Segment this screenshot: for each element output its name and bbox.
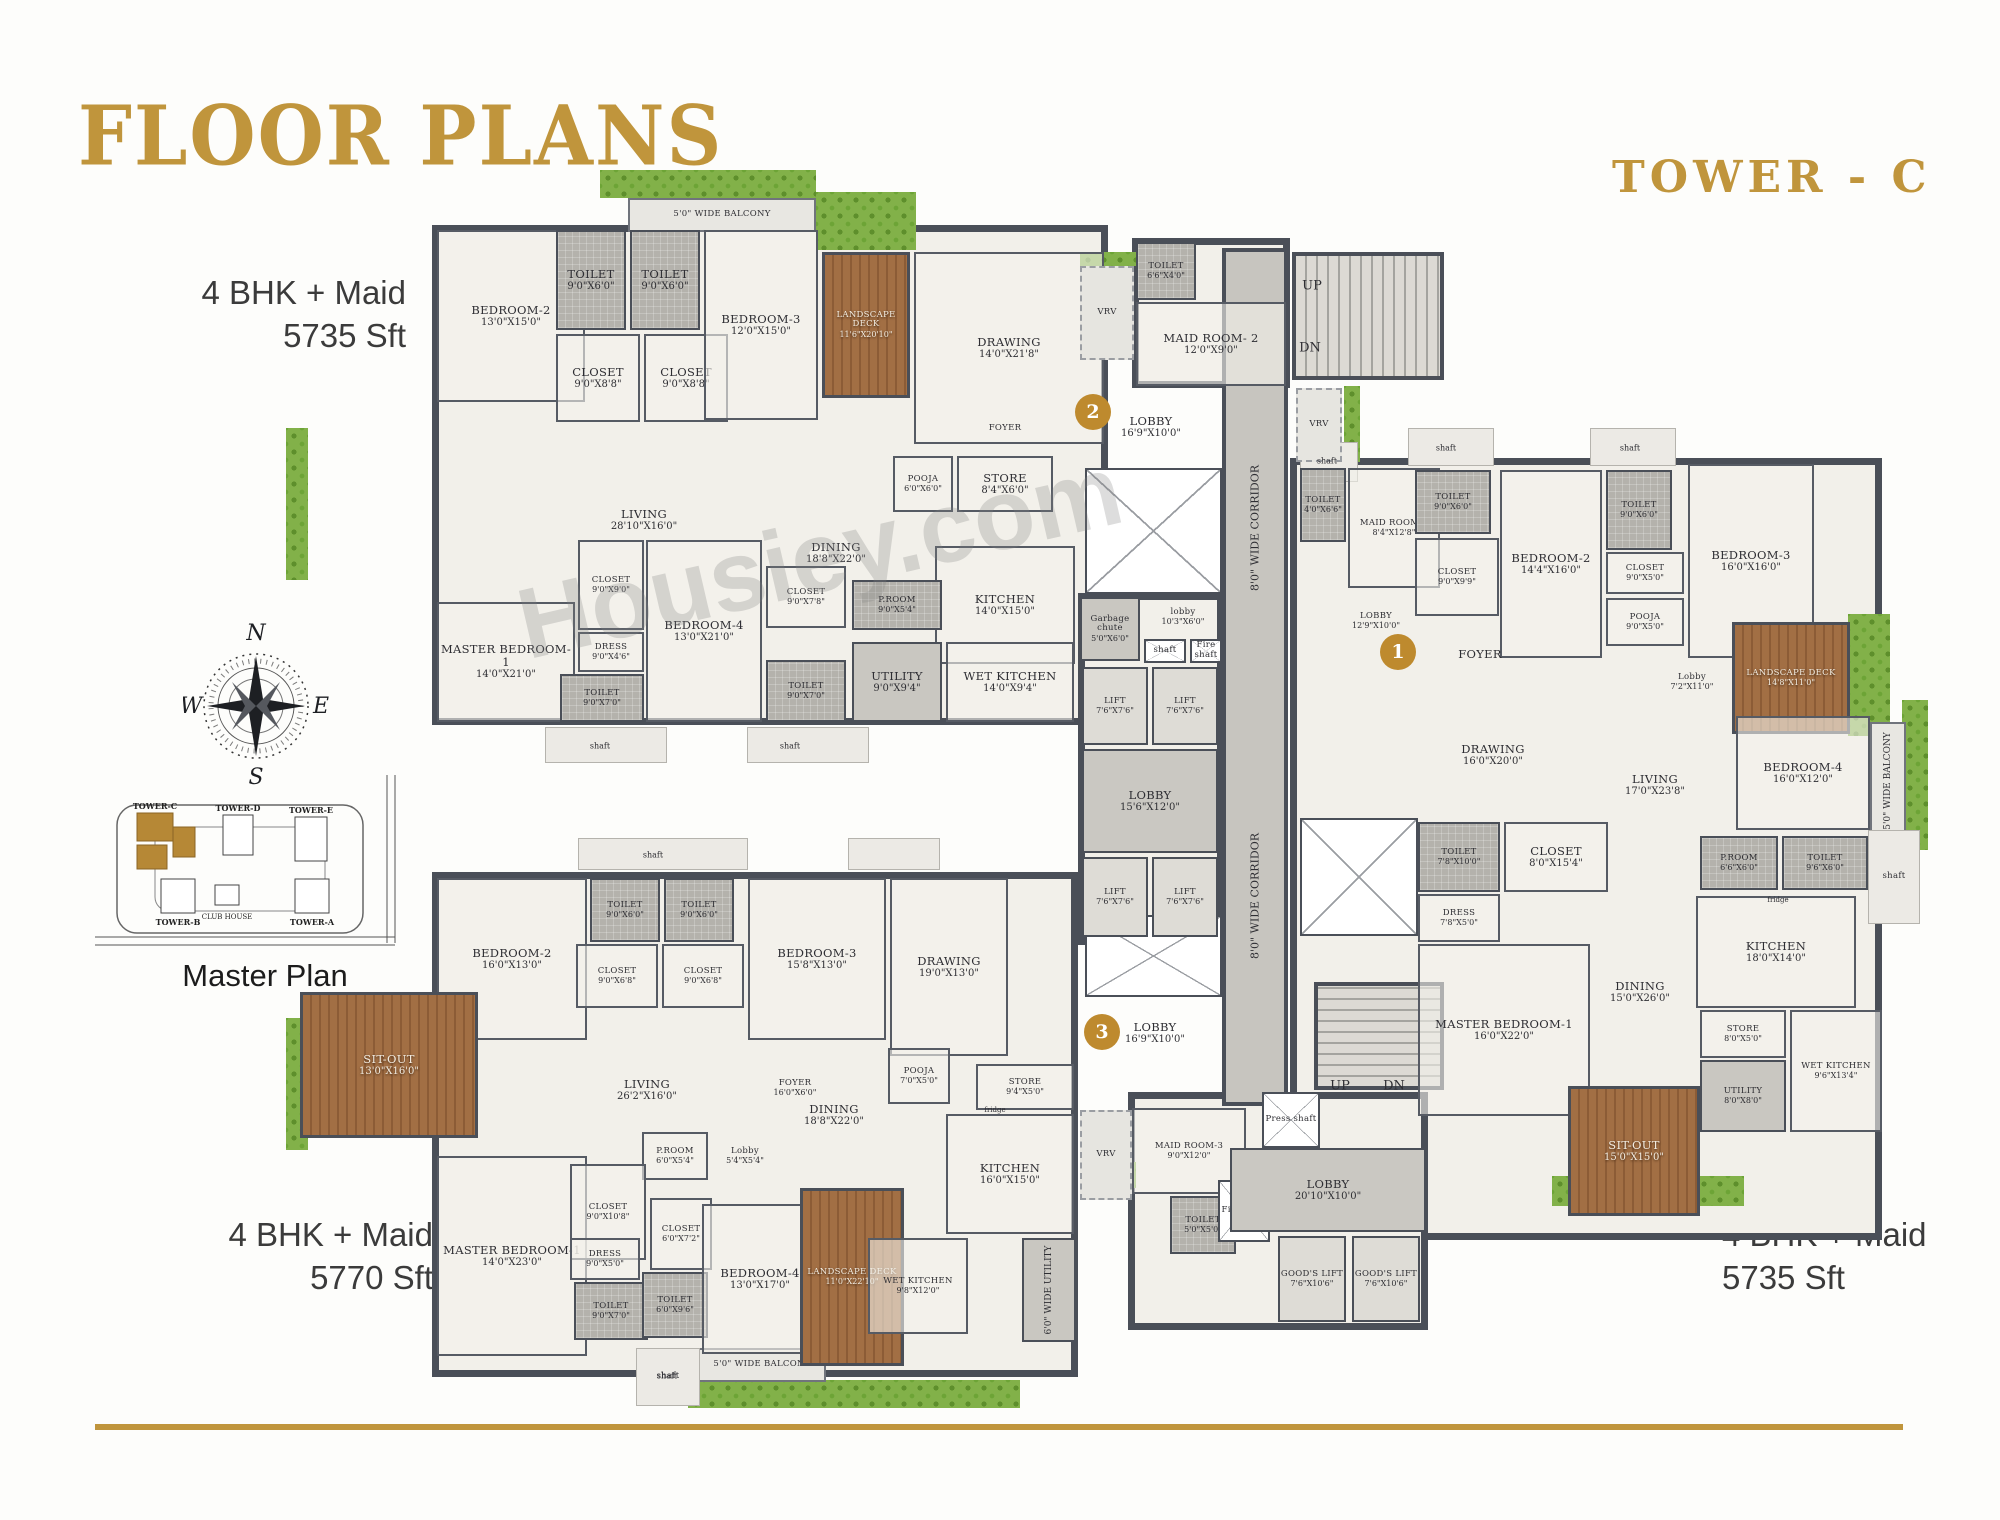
room-toilet: TOILET9'0"X6'0"	[664, 878, 734, 942]
label-shaft: shaft	[1317, 457, 1337, 466]
label-up: UP	[1330, 1079, 1350, 1094]
room-dining: DINING15'0"X26'0"	[1592, 880, 1688, 1104]
room-kitchen: KITCHEN16'0"X15'0"	[946, 1114, 1074, 1234]
room-toilet: TOILET9'0"X7'0"	[560, 674, 644, 722]
room-dress: DRESS7'8"X5'0"	[1418, 894, 1500, 942]
room-dress: DRESS9'0"X4'6"	[578, 632, 644, 672]
label-5-0-wide-balcony: 5'0" WIDE BALCONY	[1883, 732, 1893, 830]
svg-text:TOWER-A: TOWER-A	[290, 917, 335, 927]
room-lobby: Lobby5'4"X5'4"	[712, 1132, 778, 1180]
label-dn: DN	[1383, 1079, 1405, 1094]
footer-divider	[95, 1424, 1903, 1430]
svg-text:TOWER-C: TOWER-C	[133, 801, 177, 811]
unit-label-bottom-left: 4 BHK + Maid 5770 Sft	[195, 1214, 433, 1300]
zone-void	[1085, 468, 1222, 594]
room-maid-room-2: MAID ROOM- 212'0"X9'0"	[1136, 302, 1286, 386]
room-toilet: TOILET9'0"X6'0"	[590, 878, 660, 942]
svg-text:W: W	[183, 694, 205, 719]
room-landscape-deck: LANDSCAPE DECK11'6"X20'10"	[822, 252, 910, 398]
unit1-type: 4 BHK + Maid	[168, 272, 406, 315]
svg-text:N: N	[245, 621, 266, 646]
label-fridge: fridge	[1767, 896, 1788, 904]
room-bedroom-3: BEDROOM-312'0"X15'0"	[704, 230, 818, 420]
room-master-bedroom-1: MASTER BEDROOM-114'0"X21'0"	[437, 602, 575, 722]
room-master-bedroom-1: MASTER BEDROOM-114'0"X23'0"	[437, 1156, 587, 1356]
room-shaft: shaft	[1868, 830, 1920, 924]
svg-text:E: E	[312, 694, 329, 719]
zone-green	[816, 192, 916, 250]
room-lift: LIFT7'6"X7'6"	[1152, 667, 1218, 745]
zone-void	[1300, 818, 1418, 936]
room-vrv: VRV	[1080, 1110, 1132, 1200]
room-closet: CLOSET9'0"X9'0"	[578, 540, 644, 630]
room-utility: UTILITY8'0"X8'0"	[1700, 1060, 1786, 1132]
master-plan-inset: TOWER-C TOWER-D TOWER-E TOWER-B CLUB HOU…	[95, 775, 475, 960]
unit-label-top-left: 4 BHK + Maid 5735 Sft	[168, 272, 406, 358]
room-p-room: P.ROOM9'0"X5'4"	[852, 580, 942, 630]
unit1-area: 5735 Sft	[168, 315, 406, 358]
room-utility: UTILITY9'0"X9'4"	[852, 642, 942, 722]
compass-rose: N S W E	[183, 618, 329, 788]
room-lift: LIFT7'6"X7'6"	[1152, 857, 1218, 937]
svg-text:TOWER-D: TOWER-D	[216, 803, 261, 813]
room-closet: CLOSET9'0"X9'9"	[1415, 538, 1499, 616]
zone-green	[600, 170, 816, 198]
room-lift: LIFT7'6"X7'6"	[1082, 667, 1148, 745]
room-press-shaft: Press shaft	[1262, 1092, 1320, 1148]
room-wet-kitchen: WET KITCHEN9'8"X12'0"	[868, 1238, 968, 1334]
room-shaft: shaft	[1144, 639, 1186, 663]
floor-plan-page: FLOOR PLANS TOWER - C 4 BHK + Maid 5735 …	[0, 0, 2000, 1520]
label-shaft: shaft	[657, 1372, 677, 1381]
room-store: STORE8'4"X6'0"	[957, 456, 1053, 512]
room-toilet: TOILET9'0"X6'0"	[1606, 470, 1672, 550]
label-6-0-wide-utility: 6'0" WIDE UTILITY	[1044, 1246, 1054, 1335]
room-toilet: TOILET9'0"X7'0"	[766, 660, 846, 722]
room-foyer: FOYER16'0"X6'0"	[742, 1066, 848, 1110]
room-p-room: P.ROOM6'0"X5'4"	[642, 1132, 708, 1180]
room-kitchen: KITCHEN18'0"X14'0"	[1696, 896, 1856, 1008]
room-lobby: LOBBY20'10"X10'0"	[1230, 1148, 1426, 1232]
svg-text:CLUB HOUSE: CLUB HOUSE	[202, 913, 253, 921]
room-bedroom-4: BEDROOM-416'0"X12'0"	[1736, 716, 1870, 830]
room-closet: CLOSET9'0"X6'8"	[576, 944, 658, 1008]
room-closet: CLOSET9'0"X5'0"	[1606, 552, 1684, 594]
room-lobby: LOBBY15'6"X12'0"	[1082, 749, 1218, 853]
master-plan-caption: Master Plan	[150, 958, 380, 994]
svg-text:TOWER-E: TOWER-E	[289, 805, 333, 815]
room-wet-kitchen: WET KITCHEN9'6"X13'4"	[1790, 1010, 1882, 1132]
room-foyer: FOYER	[940, 406, 1070, 452]
room-vrv: VRV	[1080, 266, 1134, 360]
room-toilet: TOILET9'0"X6'0"	[630, 230, 700, 330]
label-8-0-wide-corridor: 8'0" WIDE CORRIDOR	[1249, 833, 1262, 959]
tower-label: TOWER - C	[1612, 152, 1932, 203]
unit2-type: 4 BHK + Maid	[195, 1214, 433, 1257]
label-up: UP	[1302, 279, 1322, 294]
room-toilet: TOILET6'6"X4'0"	[1136, 242, 1196, 300]
room-master-bedroom-1: MASTER BEDROOM-116'0"X22'0"	[1418, 944, 1590, 1116]
room-toilet: TOILET9'6"X6'0"	[1782, 836, 1868, 890]
label-fridge: fridge	[984, 1106, 1005, 1114]
unit-marker-1: 1	[1380, 634, 1416, 670]
room-drawing: DRAWING19'0"X13'0"	[890, 878, 1008, 1056]
unit-marker-2: 2	[1075, 394, 1111, 430]
room-foyer: FOYER	[1432, 628, 1528, 682]
room-store: STORE8'0"X5'0"	[1700, 1010, 1786, 1058]
room-toilet: TOILET7'8"X10'0"	[1418, 822, 1500, 892]
room-toilet: TOILET4'0"X6'6"	[1300, 468, 1346, 542]
room-sit-out: SIT-OUT13'0"X16'0"	[300, 992, 478, 1138]
room-store: STORE9'4"X5'0"	[976, 1064, 1074, 1110]
unit-marker-3: 3	[1084, 1014, 1120, 1050]
label-shaft: shaft	[643, 851, 663, 860]
room-toilet: TOILET6'0"X9'6"	[642, 1272, 708, 1338]
room-fire-shaft: Fire shaft	[1190, 639, 1222, 663]
room-toilet: TOILET9'0"X6'0"	[1415, 470, 1491, 534]
label-shaft: shaft	[590, 742, 610, 751]
label-shaft: shaft	[780, 742, 800, 751]
room-good-s-lift: GOOD'S LIFT7'6"X10'6"	[1352, 1236, 1420, 1322]
room-p-room: P.ROOM6'6"X6'0"	[1700, 836, 1778, 890]
room-closet: CLOSET9'0"X8'8"	[556, 334, 640, 422]
room-good-s-lift: GOOD'S LIFT7'6"X10'6"	[1278, 1236, 1346, 1322]
room-5-0-wide-balcony: 5'0" WIDE BALCONY	[628, 198, 816, 232]
unit2-area: 5770 Sft	[195, 1257, 433, 1300]
room-lobby: lobby10'3"X6'0"	[1144, 597, 1222, 637]
label-shaft: shaft	[1436, 444, 1456, 453]
zone-green	[286, 428, 308, 580]
room-toilet: TOILET9'0"X7'0"	[574, 1282, 648, 1340]
room-pooja: POOJA7'0"X5'0"	[888, 1048, 950, 1104]
room-pooja: POOJA6'0"X6'0"	[893, 456, 953, 512]
zone-green	[688, 1380, 1020, 1408]
room-drawing: DRAWING16'0"X20'0"	[1415, 684, 1571, 826]
room-lift: LIFT7'6"X7'6"	[1082, 857, 1148, 937]
zone-stairs	[1292, 252, 1444, 380]
zone-shaft	[747, 727, 869, 763]
zone-shaft	[848, 838, 940, 870]
room-sit-out: SIT-OUT15'0"X15'0"	[1568, 1086, 1700, 1216]
label-shaft: shaft	[1620, 444, 1640, 453]
svg-text:TOWER-B: TOWER-B	[156, 917, 201, 927]
room-garbage-chute: Garbage chute5'0"X6'0"	[1080, 597, 1140, 661]
label-dn: DN	[1299, 341, 1321, 356]
room-dress: DRESS9'0"X5'0"	[570, 1238, 640, 1280]
room-vrv: VRV	[1296, 388, 1342, 462]
room-toilet: TOILET9'0"X6'0"	[556, 230, 626, 330]
unit3-area: 5735 Sft	[1722, 1257, 2000, 1300]
room-closet: CLOSET9'0"X6'8"	[662, 944, 744, 1008]
room-wet-kitchen: WET KITCHEN14'0"X9'4"	[946, 642, 1074, 722]
label-8-0-wide-corridor: 8'0" WIDE CORRIDOR	[1249, 465, 1262, 591]
room-bedroom-4: BEDROOM-413'0"X21'0"	[646, 540, 762, 722]
room-closet: CLOSET9'0"X7'8"	[766, 566, 846, 628]
